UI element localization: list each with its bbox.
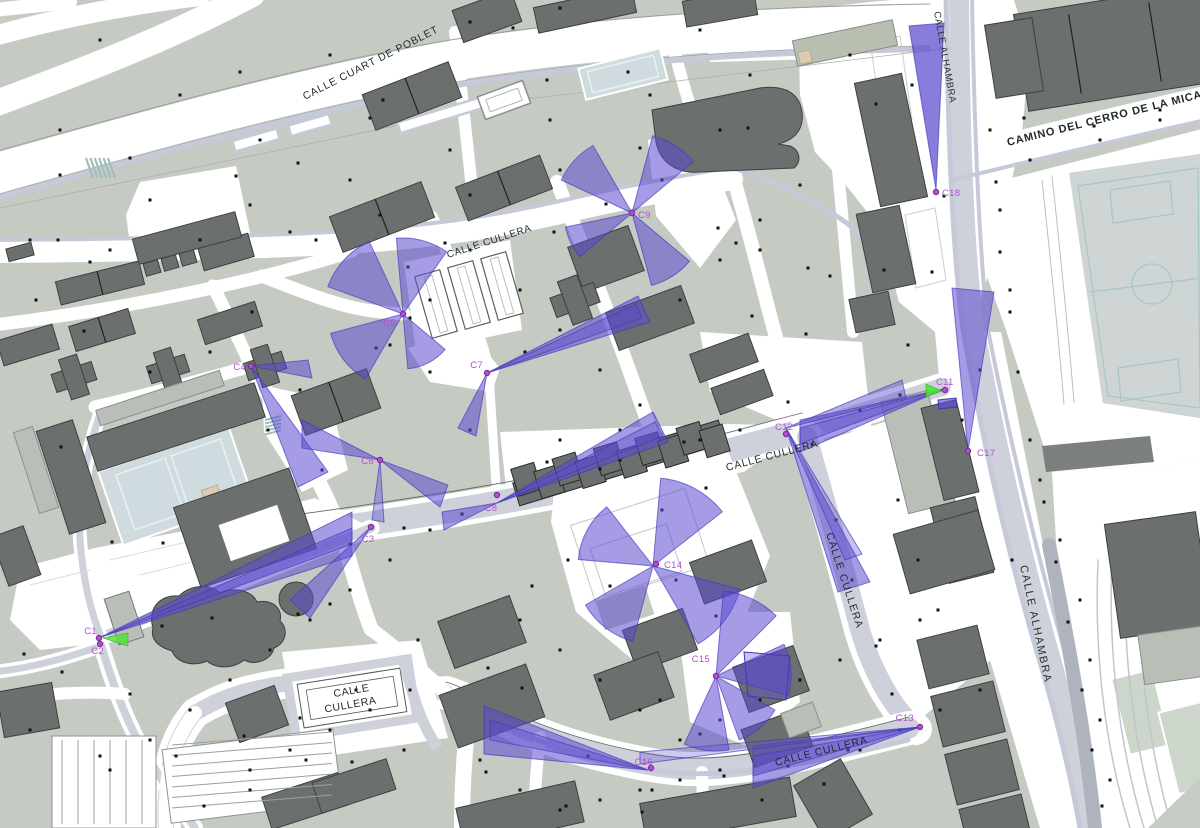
svg-text:C7: C7 — [470, 360, 483, 371]
svg-text:C17: C17 — [977, 448, 995, 459]
svg-text:C12: C12 — [775, 422, 793, 433]
svg-text:C2: C2 — [91, 646, 104, 657]
svg-text:C5: C5 — [383, 318, 396, 329]
svg-text:C1: C1 — [84, 626, 97, 637]
svg-text:C15: C15 — [692, 654, 710, 665]
svg-text:C16: C16 — [635, 757, 653, 768]
svg-text:C6: C6 — [361, 456, 374, 467]
svg-text:C13: C13 — [896, 713, 914, 724]
svg-text:C4: C4 — [233, 362, 246, 373]
svg-text:C18: C18 — [942, 188, 960, 199]
svg-text:C3: C3 — [362, 534, 375, 545]
svg-text:C14: C14 — [664, 560, 682, 571]
svg-text:C8: C8 — [485, 503, 498, 514]
svg-text:C9: C9 — [638, 210, 651, 221]
svg-text:C11: C11 — [936, 377, 954, 388]
